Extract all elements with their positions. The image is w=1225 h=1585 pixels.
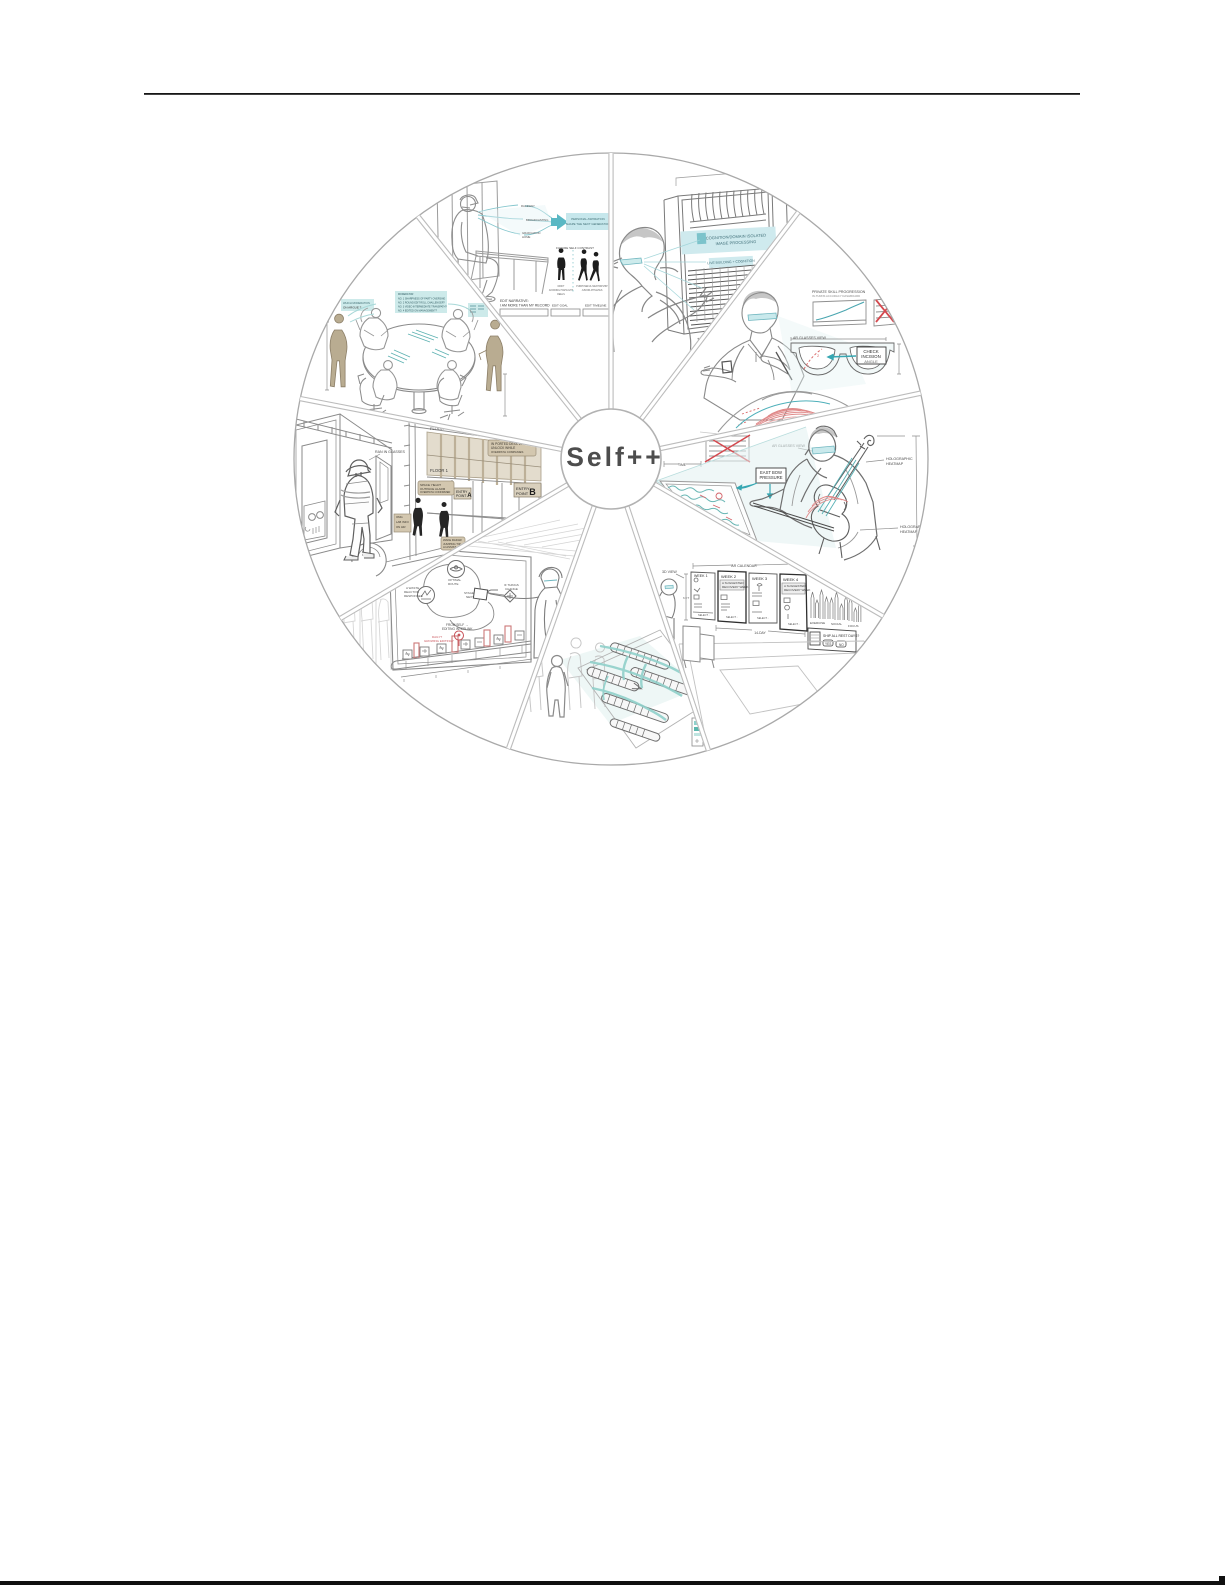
- svg-text:6 FT: 6 FT: [683, 596, 689, 600]
- svg-text:EDIT GOAL: EDIT GOAL: [552, 304, 568, 308]
- svg-text:SOCIAL: SOCIAL: [831, 622, 842, 626]
- svg-text:GROWING EDITING?: GROWING EDITING?: [424, 639, 454, 643]
- svg-text:EDIT TIMELINE: EDIT TIMELINE: [585, 304, 606, 308]
- svg-text:EDIT NARRATIVE:: EDIT NARRATIVE:: [500, 299, 529, 303]
- svg-text:PURPOSEFUL MENTORSHIP: PURPOSEFUL MENTORSHIP: [576, 286, 608, 288]
- svg-text:SELECT ◦: SELECT ◦: [788, 622, 800, 626]
- svg-text:OVERPATH COMPANIES: OVERPATH COMPANIES: [491, 450, 523, 454]
- svg-text:TIME: TIME: [678, 463, 687, 467]
- svg-text:OVERPATH CONFIRMED: OVERPATH CONFIRMED: [420, 490, 450, 494]
- svg-text:3D VIEW: 3D VIEW: [662, 570, 677, 574]
- svg-text:CHANGE: CHANGE: [505, 587, 518, 591]
- svg-text:ON ARGUE ?: ON ARGUE ?: [343, 306, 362, 310]
- svg-text:WEEK 4: WEEK 4: [783, 577, 799, 582]
- svg-text:YES: YES: [825, 642, 831, 646]
- svg-text:JUNIOR ATHLETES: JUNIOR ATHLETES: [582, 289, 603, 292]
- svg-text:AVOIDING HIGHLIGHT: AVOIDING HIGHLIGHT: [549, 289, 574, 292]
- svg-text:RECOVERY WEEK: RECOVERY WEEK: [722, 585, 748, 589]
- svg-text:WEEK 1: WEEK 1: [694, 574, 708, 578]
- svg-text:I AM MORE THAN MY RECORD: I AM MORE THAN MY RECORD: [500, 304, 550, 308]
- svg-text:HOLOGRAPHIC: HOLOGRAPHIC: [886, 457, 913, 461]
- svg-text:AR CALENDAR: AR CALENDAR: [731, 564, 757, 568]
- svg-text:SELECT ◦: SELECT ◦: [757, 616, 769, 620]
- svg-text:LAB INFO: LAB INFO: [396, 520, 410, 524]
- svg-text:WEEK 3: WEEK 3: [752, 576, 768, 581]
- svg-text:ROUTE: ROUTE: [448, 582, 459, 586]
- svg-text:IN-TURNS ACCURACY DASHBOARD: IN-TURNS ACCURACY DASHBOARD: [812, 294, 860, 298]
- svg-text:PERSONAL ASPIRATION: PERSONAL ASPIRATION: [571, 217, 605, 221]
- svg-text:WEEK 2: WEEK 2: [721, 574, 737, 579]
- svg-text:x: x: [807, 363, 809, 368]
- svg-text:MODERATOR: MODERATOR: [398, 293, 414, 296]
- svg-text:FLOOR 1: FLOOR 1: [430, 468, 449, 473]
- svg-text:PRESSURE: PRESSURE: [759, 475, 782, 480]
- svg-text:AR GLASSES VIEW: AR GLASSES VIEW: [793, 336, 827, 340]
- svg-text:SELECT ◦: SELECT ◦: [726, 615, 738, 619]
- svg-text:OMG: OMG: [396, 515, 403, 519]
- svg-text:14-DAY: 14-DAY: [754, 631, 766, 635]
- svg-text:RAN IN GLASSES: RAN IN GLASSES: [375, 450, 406, 454]
- svg-text:REELS: REELS: [557, 294, 565, 296]
- svg-text:NO. 1 SHARPNESS OF PARTY OVERS: NO. 1 SHARPNESS OF PARTY OVERSING: [398, 298, 445, 301]
- svg-text:SELECT ◦: SELECT ◦: [698, 613, 710, 617]
- svg-text:ANGLE: ANGLE: [864, 359, 878, 364]
- svg-text:DRIFT: DRIFT: [558, 286, 565, 288]
- svg-text:HEATMAP: HEATMAP: [900, 530, 918, 534]
- svg-text:RECOVERY WEEK: RECOVERY WEEK: [784, 588, 810, 592]
- svg-text:Self++: Self++: [566, 442, 664, 472]
- svg-text:RESPONSES: RESPONSES: [404, 594, 423, 598]
- svg-text:HEATMAP: HEATMAP: [886, 462, 904, 466]
- svg-text:SHAPE THE NEXT GENERATION: SHAPE THE NEXT GENERATION: [566, 222, 611, 226]
- svg-text:NO. 2 ROUND EDIT ROLL CHALLENG: NO. 2 ROUND EDIT ROLL CHALLENGER?: [398, 302, 445, 305]
- svg-text:NO. 4 EDITED ON MANAGEMENT?: NO. 4 EDITED ON MANAGEMENT?: [398, 310, 438, 313]
- svg-text:EDITING INTERLINK: EDITING INTERLINK: [442, 627, 473, 631]
- svg-text:ON AIR: ON AIR: [396, 525, 405, 529]
- svg-text:NO. 3 VIDEO INTERMEDIATE TRANS: NO. 3 VIDEO INTERMEDIATE TRANSPATH?: [398, 306, 447, 309]
- svg-text:EXERCISE: EXERCISE: [810, 621, 825, 625]
- svg-text:WHICH MODERATION: WHICH MODERATION: [343, 301, 370, 305]
- svg-text:RACEWAY: RACEWAY: [521, 204, 535, 208]
- svg-text:SHIP ALL REST DAYS?: SHIP ALL REST DAYS?: [823, 634, 859, 638]
- svg-text:BROADCASTING: BROADCASTING: [526, 218, 548, 222]
- svg-text:HOME: HOME: [522, 235, 531, 239]
- svg-text:NO: NO: [839, 643, 844, 647]
- svg-text:FOCUS: FOCUS: [848, 624, 859, 628]
